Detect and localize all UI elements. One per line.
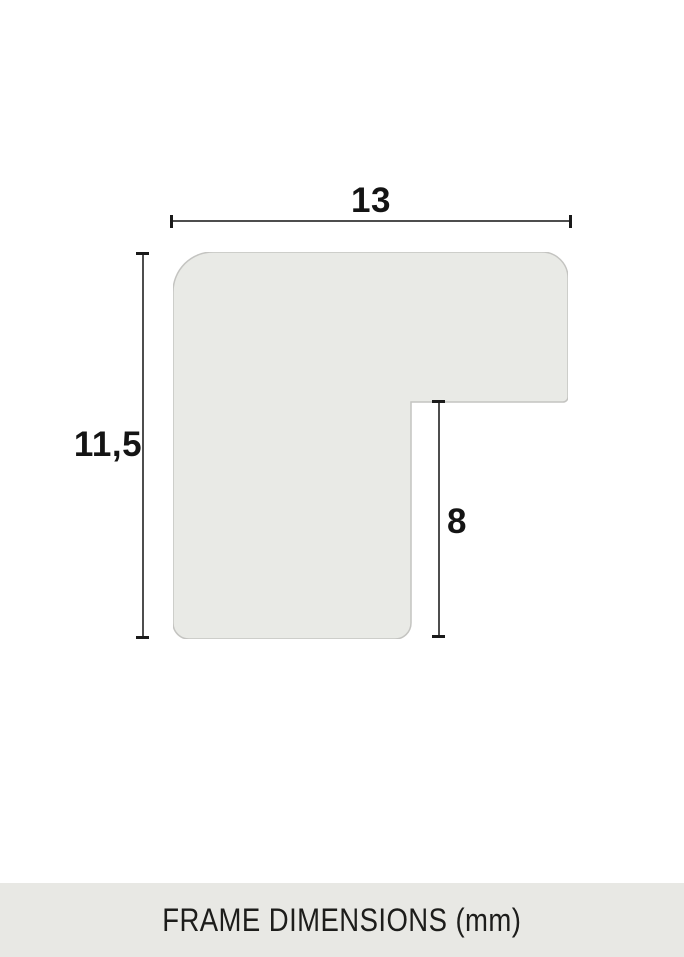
dimension-top-line	[170, 220, 572, 222]
dimension-inner	[432, 400, 445, 638]
dimension-inner-tick-top	[432, 400, 445, 403]
dimension-left-line	[142, 252, 144, 639]
dimension-top-label: 13	[171, 183, 571, 218]
footer-bar: FRAME DIMENSIONS (mm)	[0, 883, 684, 957]
dimension-inner-tick-bottom	[432, 635, 445, 638]
dimension-left-tick-top	[136, 252, 149, 255]
footer-caption: FRAME DIMENSIONS (mm)	[162, 902, 521, 939]
frame-profile-shape	[173, 252, 568, 639]
dimension-left-tick-bottom	[136, 636, 149, 639]
frame-profile-path	[173, 252, 568, 639]
frame-dimensions-page: 13 11,5 8 FRAME DIMENSIONS (mm)	[0, 0, 684, 957]
dimension-top-tick-right	[569, 215, 572, 228]
dimension-left	[136, 252, 149, 639]
dimension-top	[170, 215, 572, 228]
dimension-inner-line	[438, 400, 440, 638]
dimension-top-tick-left	[170, 215, 173, 228]
